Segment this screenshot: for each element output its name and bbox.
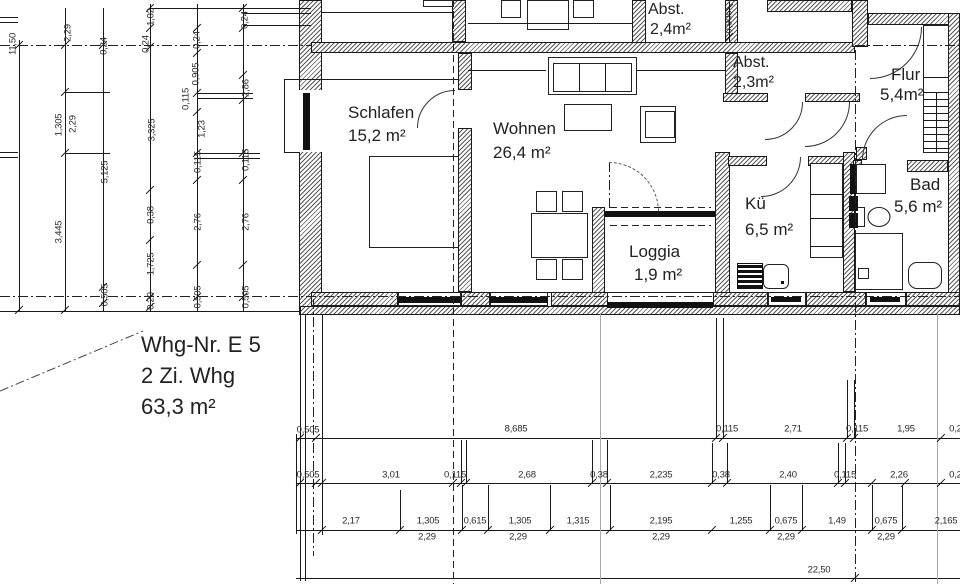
- dimension-label: 0,20: [146, 292, 157, 310]
- door-swing-arc: [761, 157, 801, 197]
- wall-segment: [461, 292, 490, 306]
- wall-segment: [311, 292, 398, 306]
- dimension-label: 2,29: [418, 532, 436, 543]
- door-swing-circle: [761, 157, 801, 197]
- dimension-label: 2,29: [877, 532, 895, 543]
- door-swing-circle: [609, 162, 659, 212]
- v-line: [723, 318, 724, 438]
- dimension-label: 0,115: [241, 149, 252, 171]
- v-line: [453, 0, 454, 584]
- door-swing-circle: [805, 102, 850, 147]
- dimension-label: 0,38: [590, 470, 608, 481]
- dimension-label: 2,17: [342, 516, 360, 527]
- door-swing-arc: [765, 102, 803, 140]
- h-line: [0, 22, 18, 23]
- wall-segment: [311, 42, 855, 53]
- room-area-label: 2,3m²: [733, 74, 774, 92]
- dimension-label: 0,675: [775, 516, 798, 527]
- h-line: [296, 438, 960, 439]
- wall-segment: [805, 93, 860, 102]
- fixture-rect: [855, 233, 903, 290]
- wall-segment: [299, 150, 322, 315]
- v-line: [65, 8, 66, 311]
- room-area-label: 6,5 m²: [745, 220, 793, 240]
- wall-segment: [551, 292, 608, 306]
- h-line: [923, 77, 949, 78]
- fixture-rect: [858, 268, 869, 279]
- dimension-label: 1,725: [146, 253, 157, 276]
- fixture-rect: [564, 104, 612, 131]
- dimension-label: 1,315: [567, 516, 590, 527]
- dimension-label: 1,23: [197, 120, 208, 138]
- h-line: [0, 311, 300, 312]
- glazing-bar: [398, 297, 461, 303]
- dimension-label: 0,115: [834, 470, 856, 481]
- dimension-label: 5,125: [100, 161, 111, 184]
- h-line: [0, 45, 311, 46]
- h-line: [810, 246, 843, 247]
- dimension-label: 0,24: [949, 424, 960, 435]
- fixture-rect: [531, 213, 588, 258]
- door-swing-circle: [765, 102, 803, 140]
- fixture-rect: [763, 264, 789, 289]
- dimension-label: 0,24: [949, 470, 960, 481]
- dimension-label: 1,305: [509, 516, 532, 527]
- dimension-label: 2,68: [518, 470, 536, 481]
- dimension-label: 0,505: [297, 425, 320, 436]
- glazing-bar: [781, 281, 784, 284]
- h-line: [284, 79, 458, 80]
- v-line: [716, 318, 717, 438]
- fixture-rect: [527, 0, 569, 30]
- room-area-label: 5,6 m²: [894, 197, 942, 217]
- wall-segment: [868, 13, 960, 25]
- glazing-bar: [490, 297, 548, 303]
- v-line: [579, 63, 580, 92]
- room-area-label: 5,4m²: [880, 85, 923, 105]
- v-line: [322, 315, 323, 535]
- h-line: [0, 17, 18, 18]
- kitchen-sink-unit: [737, 263, 763, 289]
- dimension-label: 2,86: [241, 79, 252, 97]
- dimension-label: 1,305: [54, 114, 65, 137]
- v-line: [937, 313, 938, 584]
- h-line: [637, 70, 725, 71]
- door-swing-arc: [609, 162, 659, 212]
- wall-segment: [906, 292, 960, 306]
- v-line: [305, 315, 306, 581]
- v-line: [284, 79, 285, 153]
- room-name-label: Flur: [891, 65, 920, 85]
- fixture-rect: [908, 262, 942, 289]
- dimension-label: 11,50: [8, 33, 19, 55]
- wall-segment: [852, 0, 868, 47]
- door-swing-arc: [805, 102, 850, 147]
- h-line: [0, 157, 18, 158]
- wall-segment: [632, 0, 646, 43]
- dimension-label: 2,76: [241, 213, 252, 231]
- dimension-label: 3,01: [382, 470, 400, 481]
- wall-segment: [806, 292, 866, 306]
- fixture-rect: [369, 156, 459, 248]
- dimension-label: 0,505: [241, 286, 252, 309]
- fixture-rect: [562, 259, 583, 280]
- leader-line: [0, 331, 143, 391]
- dimension-label: 0,115: [193, 151, 204, 173]
- v-line: [770, 485, 771, 530]
- wall-segment: [458, 53, 472, 90]
- dimension-label: 0,24: [192, 31, 203, 49]
- fixture-rect: [562, 191, 583, 212]
- glazing-bar: [849, 196, 858, 211]
- dimension-label: 2,40: [779, 470, 797, 481]
- fixture-rect: [856, 164, 886, 194]
- dimension-label: 2,235: [650, 470, 673, 481]
- dimension-label: 3,445: [54, 221, 65, 244]
- dimension-label: 0,905: [724, 11, 735, 34]
- dimension-label: 1,255: [730, 516, 753, 527]
- wall-segment: [715, 152, 730, 308]
- h-line: [0, 152, 18, 153]
- h-line: [284, 152, 300, 153]
- dimension-label: 2,165: [935, 516, 958, 527]
- fixture-rect: [536, 191, 557, 212]
- floor-plan: Whg-Nr. E 5 2 Zi. Whg 63,3 m² 11,502,290…: [0, 0, 960, 584]
- glazing-bar: [607, 302, 713, 308]
- fixture-rect: [501, 0, 521, 18]
- room-area-label: 15,2 m²: [348, 126, 406, 146]
- door-swing-arc: [862, 115, 907, 160]
- h-line: [243, 13, 311, 14]
- dimension-label: 2,29: [68, 115, 79, 133]
- wall-segment: [713, 292, 768, 306]
- v-line: [19, 40, 20, 311]
- wall-segment: [452, 0, 466, 42]
- dimension-label: 0,505: [297, 470, 320, 481]
- room-name-label: Kü: [745, 194, 766, 214]
- v-line: [855, 50, 856, 584]
- h-line: [296, 530, 960, 531]
- v-line: [902, 485, 903, 530]
- dimension-label: 2,76: [193, 213, 204, 231]
- dimension-label: 2,29: [777, 532, 795, 543]
- fixture-rect: [645, 111, 675, 138]
- door-swing-circle: [862, 115, 907, 160]
- room-area-label: 26,4 m²: [493, 143, 551, 163]
- h-line: [296, 578, 960, 579]
- dimension-label: 2,29: [509, 532, 527, 543]
- dimension-label: 0,905: [191, 63, 202, 86]
- glazing-bar: [303, 93, 310, 150]
- fixture-rect: [553, 63, 632, 92]
- v-line: [605, 63, 606, 92]
- v-line: [936, 92, 937, 152]
- v-line: [400, 490, 401, 530]
- dimension-label: 1,02: [146, 8, 157, 26]
- wall-segment: [907, 160, 948, 172]
- dimension-label: 0,38: [712, 470, 730, 481]
- v-line: [488, 485, 489, 530]
- h-line: [243, 25, 311, 26]
- v-line: [300, 315, 301, 581]
- dimension-label: 0,675: [875, 516, 898, 527]
- h-line: [610, 225, 711, 226]
- dimension-label: 0,24: [141, 35, 152, 53]
- fixture-rect: [810, 163, 843, 258]
- dimension-label: 2,29: [652, 532, 670, 543]
- dimension-label: 0,115: [444, 470, 466, 481]
- dimension-label: 2,71: [784, 424, 802, 435]
- h-line: [150, 8, 311, 9]
- wall-segment: [948, 13, 960, 315]
- room-name-label: Schlafen: [348, 103, 414, 123]
- h-line: [468, 23, 632, 24]
- room-name-label: Loggia: [629, 242, 680, 262]
- toilet-icon: [868, 208, 890, 227]
- h-line: [322, 12, 452, 13]
- dimension-label: 0,38: [146, 206, 157, 224]
- h-line: [311, 292, 948, 293]
- glazing-bar: [771, 297, 801, 302]
- dimension-label: 2,26: [890, 470, 908, 481]
- v-line: [550, 485, 551, 530]
- room-area-label: 2,4m²: [650, 21, 691, 39]
- h-line: [296, 483, 960, 484]
- fixture-rect: [573, 0, 594, 18]
- glazing-bar: [870, 297, 900, 302]
- dimension-label: 3,325: [147, 119, 158, 142]
- glazing-bar: [849, 213, 858, 228]
- dimension-label: 1,49: [828, 516, 846, 527]
- h-line: [810, 218, 843, 219]
- dimension-label: 1,95: [897, 424, 915, 435]
- wall-segment: [723, 93, 768, 102]
- dimension-label: 0,115: [716, 424, 738, 435]
- wall-segment: [458, 128, 472, 292]
- wall-segment: [767, 0, 852, 12]
- room-area-label: 1,9 m²: [634, 265, 682, 285]
- dimension-label: 2,29: [63, 24, 74, 42]
- h-line: [0, 296, 960, 297]
- dimension-label: 0,115: [181, 88, 192, 110]
- room-name-label: Wohnen: [493, 119, 556, 139]
- dimension-label: 0,24: [99, 37, 110, 55]
- v-line: [802, 485, 803, 530]
- v-line: [466, 440, 467, 483]
- dimension-label: 0,505: [100, 284, 111, 307]
- v-line: [600, 313, 601, 584]
- dimension-label: 1,305: [417, 516, 440, 527]
- dimension-label: 22,50: [808, 565, 831, 576]
- dimension-label: 8,685: [505, 424, 528, 435]
- dimension-label: 2,195: [650, 516, 673, 527]
- v-line: [610, 485, 611, 530]
- h-line: [810, 194, 843, 195]
- door-swing-arc: [417, 90, 455, 128]
- dimension-label: 0,505: [193, 286, 204, 309]
- fixture-rect: [423, 0, 453, 7]
- room-name-label: Bad: [910, 175, 940, 195]
- room-name-label: Abst.: [733, 54, 769, 72]
- dimension-label: 0,615: [464, 516, 487, 527]
- room-name-label: Abst.: [648, 1, 684, 19]
- v-line: [872, 485, 873, 530]
- dimension-label: 0,115: [846, 424, 868, 435]
- door-swing-circle: [417, 90, 455, 128]
- h-line: [468, 70, 546, 71]
- fixture-rect: [536, 259, 557, 280]
- dimension-label: 0,24: [240, 11, 251, 29]
